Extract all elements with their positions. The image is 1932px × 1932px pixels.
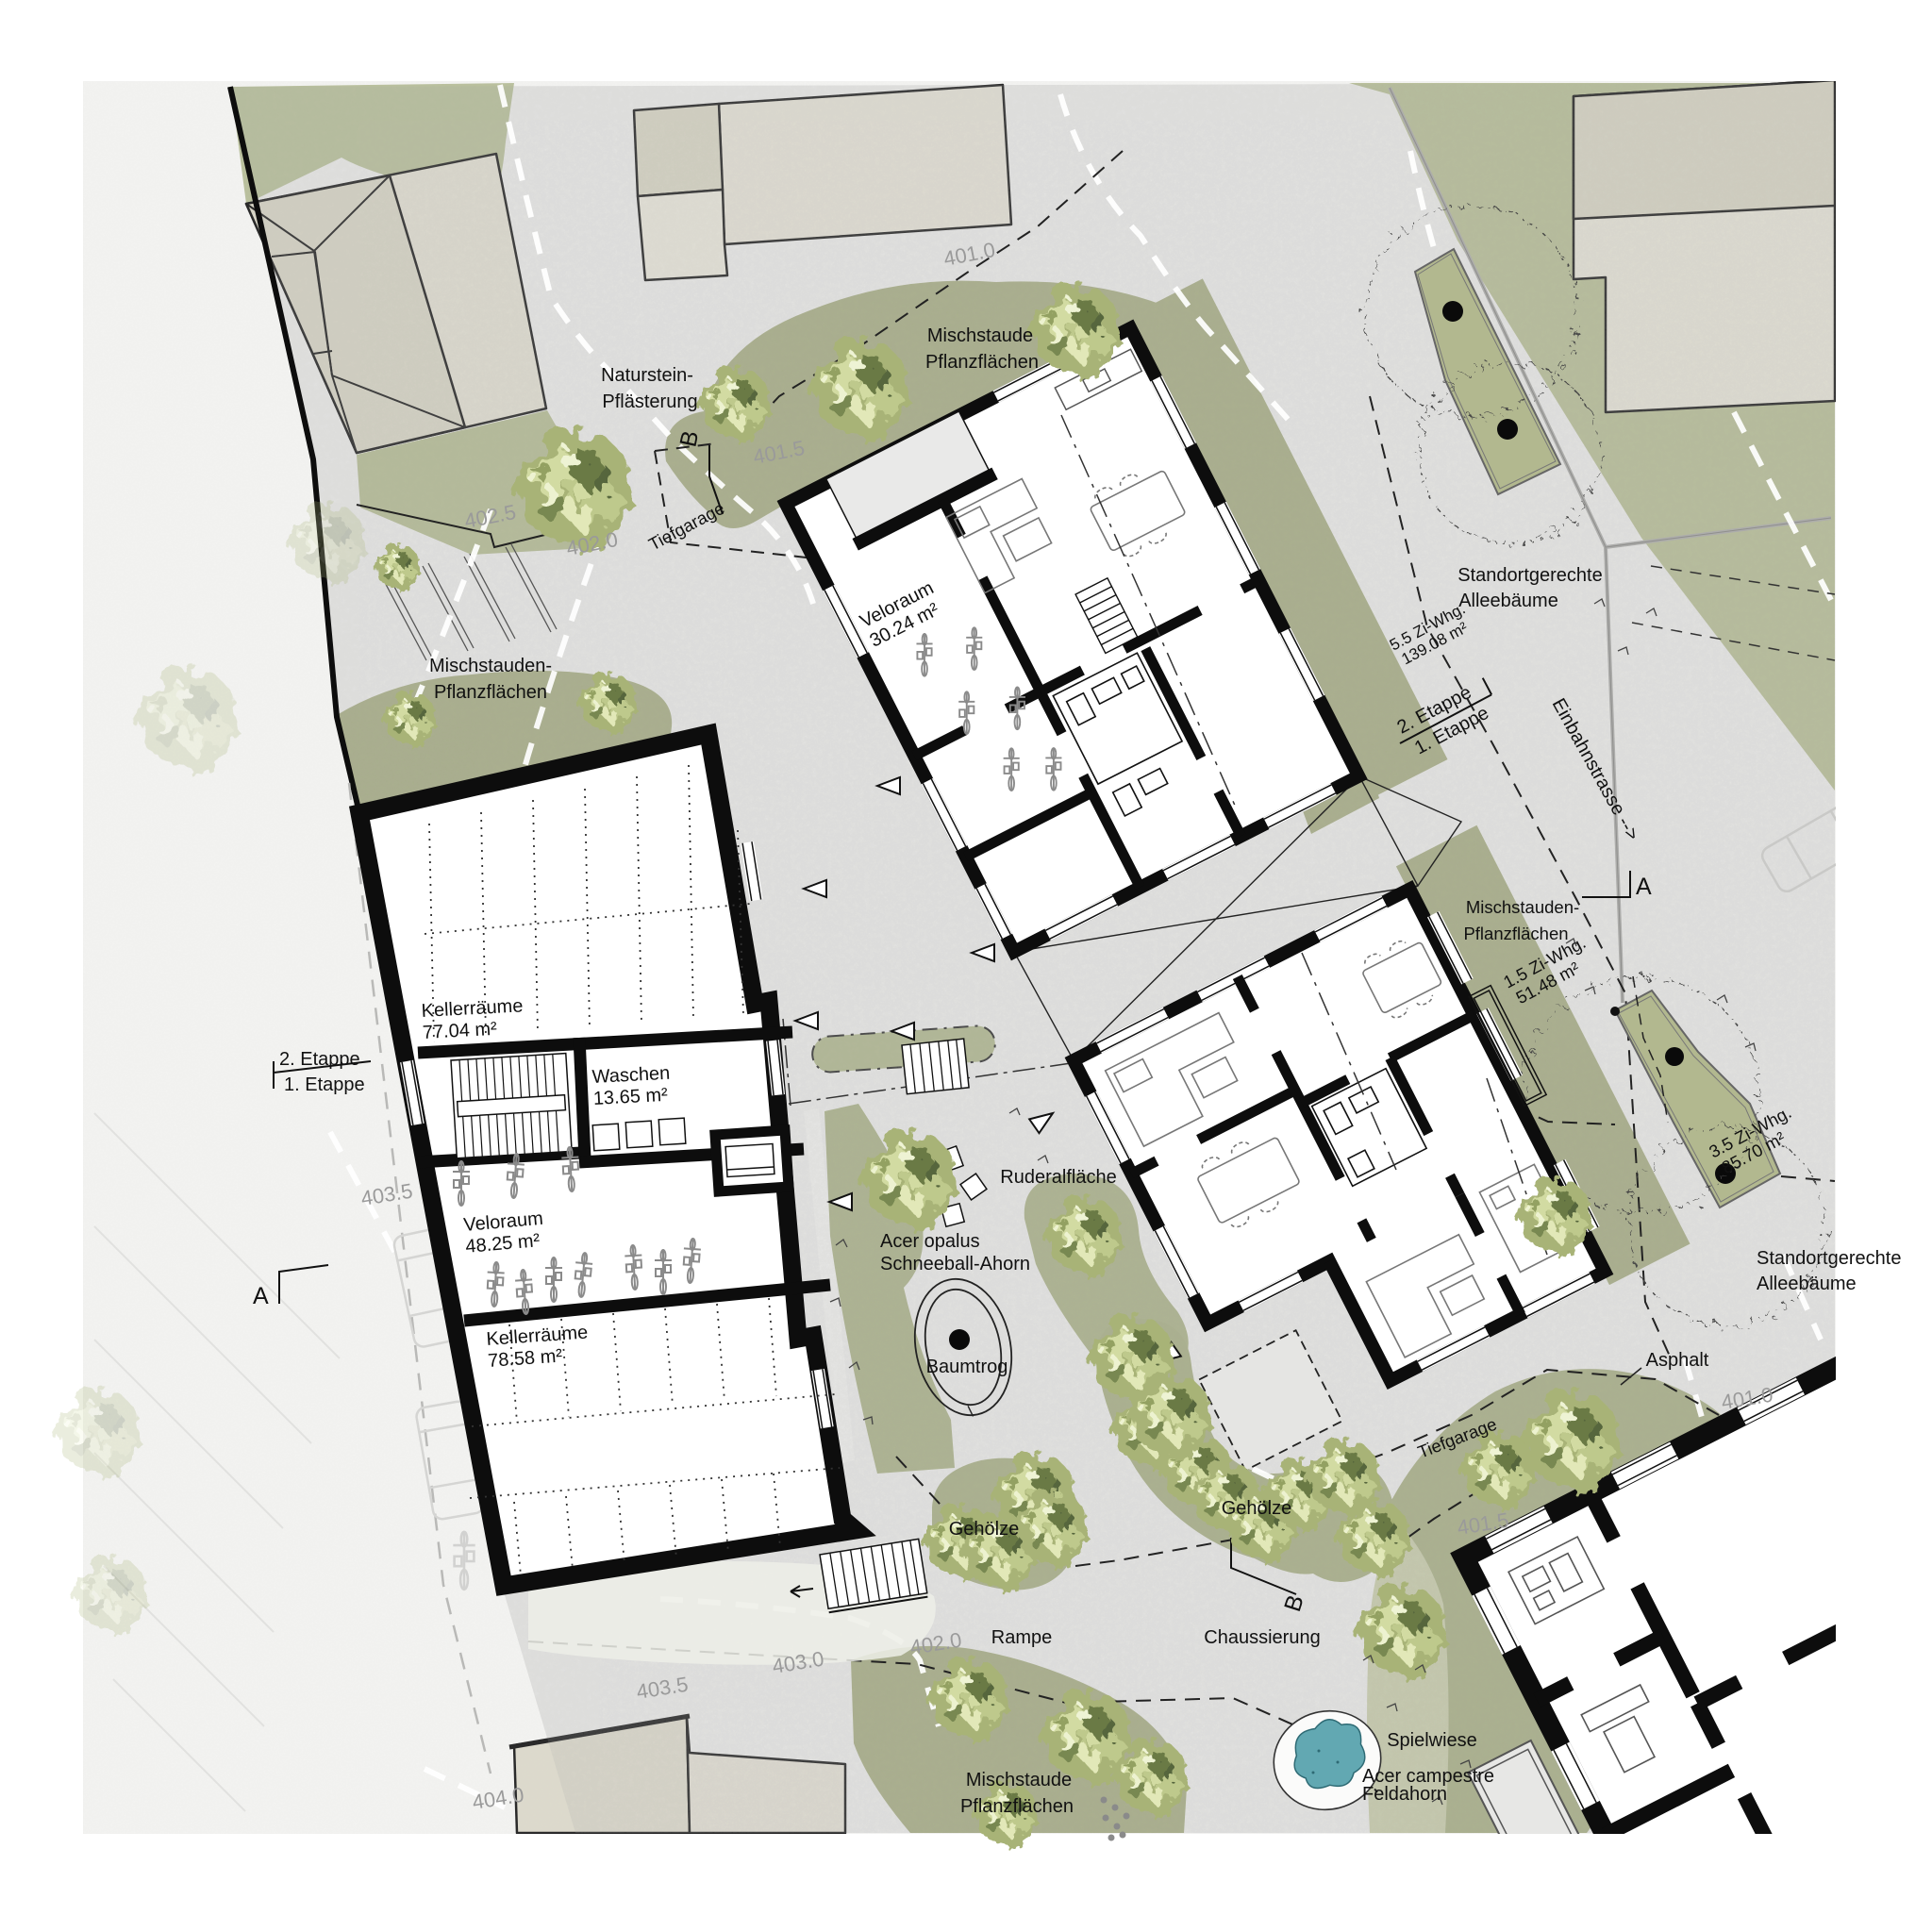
svg-text:Pflanzflächen: Pflanzflächen xyxy=(925,352,1039,373)
svg-text:1. Etappe: 1. Etappe xyxy=(284,1074,365,1095)
svg-text:Mischstauden-: Mischstauden- xyxy=(1466,897,1579,917)
svg-text:Alleebäume: Alleebäume xyxy=(1458,591,1558,611)
svg-text:Spielwiese: Spielwiese xyxy=(1387,1730,1477,1751)
svg-text:Mischstaude: Mischstaude xyxy=(927,325,1033,346)
svg-text:Asphalt: Asphalt xyxy=(1646,1350,1709,1371)
svg-text:Standortgerechte: Standortgerechte xyxy=(1757,1248,1901,1269)
svg-text:Ruderalfläche: Ruderalfläche xyxy=(1000,1167,1116,1188)
svg-text:Gehölze: Gehölze xyxy=(949,1519,1020,1540)
svg-text:Alleebäume: Alleebäume xyxy=(1757,1274,1857,1294)
svg-text:Pflanzflächen: Pflanzflächen xyxy=(960,1796,1074,1817)
svg-text:Acer opalus: Acer opalus xyxy=(880,1231,980,1252)
svg-text:Schneeball-Ahorn: Schneeball-Ahorn xyxy=(880,1254,1030,1274)
svg-text:Pflanzflächen: Pflanzflächen xyxy=(434,682,547,703)
svg-text:Mischstaude: Mischstaude xyxy=(966,1770,1072,1790)
svg-text:Rampe: Rampe xyxy=(991,1627,1052,1648)
svg-text:Chaussierung: Chaussierung xyxy=(1204,1627,1320,1648)
svg-text:13.65 m²: 13.65 m² xyxy=(592,1085,668,1109)
svg-text:Gehölze: Gehölze xyxy=(1222,1498,1292,1519)
svg-text:Feldahorn: Feldahorn xyxy=(1362,1784,1447,1805)
svg-text:77.04 m²: 77.04 m² xyxy=(422,1019,497,1043)
svg-text:Standortgerechte: Standortgerechte xyxy=(1457,565,1602,586)
svg-text:Naturstein-: Naturstein- xyxy=(601,365,693,386)
svg-text:Pflästerung: Pflästerung xyxy=(602,391,697,412)
svg-text:Waschen: Waschen xyxy=(591,1063,671,1088)
svg-text:A: A xyxy=(253,1283,269,1309)
svg-text:Pflanzflächen: Pflanzflächen xyxy=(1463,924,1568,943)
svg-text:A: A xyxy=(1636,874,1652,900)
svg-text:Mischstauden-: Mischstauden- xyxy=(429,656,552,676)
svg-text:Baumtrog: Baumtrog xyxy=(926,1357,1008,1377)
